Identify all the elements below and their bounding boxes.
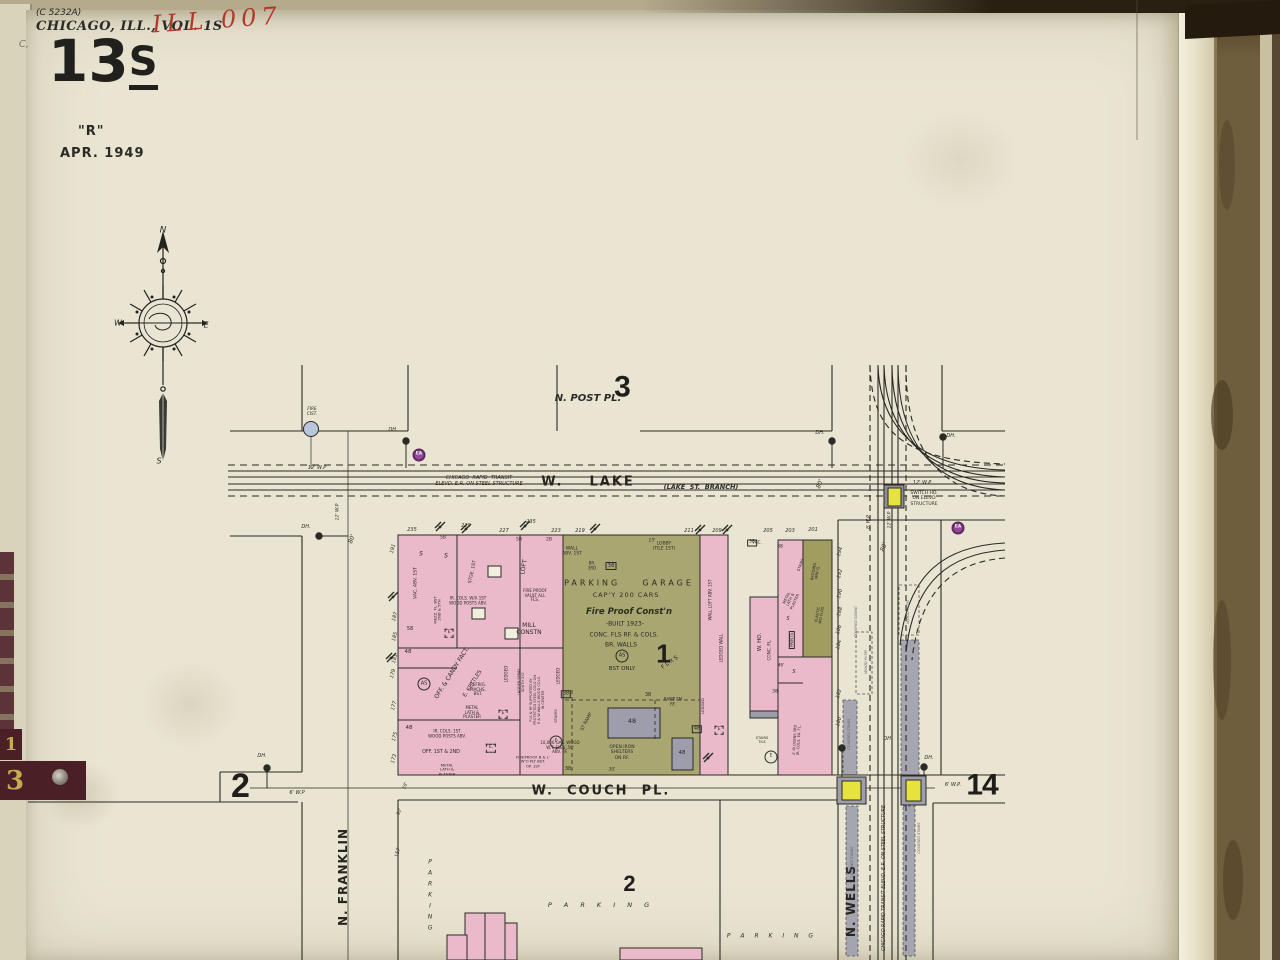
map-annotation: OFF. 1ST & 2ND [422,750,460,756]
map-annotation: RAMP FM RF. [664,697,682,706]
compass-letter-s: S [156,456,161,465]
map-annotation: 2B [546,537,552,542]
map-annotation: OPEN IRON SHELTERS ON RF. [609,745,634,761]
map-annotation: PLASTIC WD FLRS [814,606,826,625]
map-annotation: FLS & RF SUPPORTED BY PROTECTED STEEL CO… [529,675,546,725]
compass-letter-n: N [160,226,167,237]
page-ref-west: 2 [231,766,249,806]
map-annotation: IR. COLS. W/A 1ST WOOD POSTS ABV. [449,596,487,605]
map-annotation: 229 [461,524,471,530]
map-annotation: MEZZ. FL. BST 2ND & 5TH [434,596,443,623]
garage-built: -BUILT 1923- [606,620,644,627]
map-annotation: S [444,552,448,559]
map-annotation: 38 [606,562,617,570]
under-page-letter: C, [19,39,29,51]
map-annotation: VAC. ABV. 1ST [413,567,418,599]
map-annotation: COVERED STAIRS [847,718,851,749]
map-annotation: CONC. FLS RF. & COLS. [590,631,659,638]
map-annotation: 177 [391,701,399,712]
map-annotation: E [715,726,724,735]
map-annotation: 80' [396,808,403,816]
map-annotation: 209 [712,529,722,535]
street-label-franklin: N. FRANKLIN [336,828,350,926]
map-annotation: 194 [837,547,845,558]
map-annotation: 205 [763,529,773,535]
map-annotation: BST ONLY [609,666,635,672]
map-annotation: 184 [836,640,844,651]
map-annotation: 38 [561,690,571,698]
switch-house-label: SWITCH HO. ON ELEVD STRUCTURE [910,491,937,507]
map-annotation: LEDGED [557,668,562,685]
transit-label-wells: CHICAGO RAPID TRANSIT ELEVD. E.R. ON STE… [882,805,888,951]
garage-title: PARKING GARAGE [564,578,694,587]
map-annotation: BR. WALLS [605,641,637,648]
map-annotation: PAINTS [789,631,795,649]
map-annotation: 38 [565,767,571,773]
map-annotation: STAIRS TILE [756,736,769,744]
map-annotation: AS [418,678,431,691]
map-annotation: 203 [785,529,795,535]
map-annotation: FIRE PROOF VAULT ALL FLS. [523,589,547,603]
map-annotation: 211 [684,529,694,535]
map-annotation: BEDDING MNF'G. [810,562,822,581]
map-annotation: 179 [390,669,398,680]
ea-badge-west: EA [413,449,426,462]
map-annotation: S [419,550,423,557]
map-annotations-layer: 321412N. POST PL.W. LAKE(LAKE ST. BRANCH… [0,0,1280,960]
map-annotation: 48 [406,725,413,731]
map-annotation: 48 [405,649,412,655]
map-annotation: LEDGED [505,666,510,683]
map-annotation: 185 [392,632,400,643]
map-annotation: 175 [392,732,400,743]
map-annotation: IR. COLS. 1ST WOOD POSTS ABV. [428,729,466,738]
map-annotation: 6' W.P [289,791,304,797]
map-annotation: E [445,629,454,638]
garage-capacity: CAP'Y 200 CARS [593,592,660,600]
garage-construction: Fire Proof Const'n [586,607,672,617]
map-annotation: E [765,751,778,764]
map-annotation: E [499,710,508,719]
map-annotation: WALL LOFT ABV. 1ST [709,579,714,620]
map-annotation: LOBBY (TILE 1ST) [653,542,676,553]
map-annotation: MILL CONSTN [516,622,541,636]
map-annotation: 12' W.P [913,481,931,487]
map-annotation: ST RAMP [580,712,594,732]
parking-label-center: P A R K I N G [548,902,654,910]
map-annotation: STAIRS [554,709,558,722]
map-annotation: CONC. FL. [768,639,773,660]
map-annotation: 12' W.P [887,512,892,529]
map-annotation: 38 [772,689,778,694]
map-annotation: 182 [836,689,844,700]
map-annotation: 8' W.P [866,515,871,529]
map-annotation: STAIRS [797,558,806,572]
map-annotation: 30' [609,767,616,772]
map-annotation: COVERED STAIRS [917,822,921,853]
block-number-2: 2 [623,871,634,897]
compass-letter-e: E [203,320,208,329]
transit-label-lake: CHICAGO RAPID TRANSIT ELEVD. E.R. ON STE… [435,476,522,488]
map-annotation: METAL LATH & PLASTER [463,706,481,720]
map-annotation: DH. [924,756,933,762]
map-annotation: 80' [879,541,889,552]
map-annotation: METAL LATH & PLASTER [781,590,800,611]
street-label-couch: W. COUCH PL. [532,783,671,798]
map-annotation: 12' W.P [335,504,340,521]
map-annotation: FIREPROOF B & L' W'O PLT BST. OP. 1ST [516,755,550,768]
map-annotation: METAL LATH & PLASTER [439,763,456,776]
map-annotation: 5B [516,537,522,542]
page-ref-east: 14 [966,767,997,802]
map-annotation: 235 [407,528,417,534]
map-annotation: 5B [440,535,446,540]
map-annotation: 190 [837,589,845,600]
map-annotation: S [792,670,795,676]
street-label-post: N. POST PL. [555,393,621,405]
map-annotation: 48 [692,725,702,733]
map-annotation: E [550,736,563,749]
map-annotation: LEDGED WALL [720,634,725,663]
map-annotation: DH. [946,434,955,440]
ea-badge-east: EA [952,522,965,535]
map-annotation: 12' W.P [308,466,326,472]
map-annotation: DH. [257,754,266,760]
map-annotation: 187 [392,612,400,623]
map-annotation: 186 [836,625,844,636]
map-annotation: 38 [747,540,757,547]
map-annotation: WOOD PLTM [906,600,910,624]
map-annotation: 192 [837,569,845,580]
sanborn-map-page: 1 3 (C 5232A) CHICAGO, ILL., VOL. 1S ILL… [0,0,1280,960]
map-annotation: STGE. 1ST [468,560,478,584]
map-annotation: LOFT [519,559,529,575]
map-annotation: 80' [347,533,357,544]
map-annotation: LADDER SPRAY SOUTH S'O' [517,669,525,695]
parking-label-west: PARKING [426,859,433,936]
compass-letter-w: W [114,318,122,327]
parking-label-east: P A R K I N G [727,932,817,939]
map-annotation: AS [616,650,629,663]
map-annotation: DH. [883,737,892,743]
map-annotation: DH. [815,431,824,437]
map-annotation: 157 [395,848,403,859]
map-annotation: 188 [837,607,845,618]
map-annotation: E. [486,744,496,753]
map-annotation: 201 [808,528,818,534]
map-annotation: LEDGED [701,698,705,714]
map-annotation: 18' [402,782,409,790]
street-label-lake-branch: (LAKE ST. BRANCH) [664,484,739,492]
map-annotation: 2' IR OVENS 3RD IR. COLS. EA. FL. [792,725,802,756]
map-annotation: DH. [301,525,310,531]
map-annotation: 46' [778,664,784,669]
map-annotation: WOOD PLTM [864,650,868,674]
map-annotation: 38 [645,693,651,699]
map-annotation: 15' [649,538,656,543]
map-annotation: 235 [526,520,536,526]
map-annotation: COVERED SIDING [854,606,858,637]
map-annotation: 173 [391,754,399,765]
map-annotation: W. HO. [757,633,763,651]
map-annotation: 6' W.P. [945,783,961,789]
map-annotation: 48 [628,718,636,726]
map-annotation: 38 [777,544,783,549]
map-annotation: 48 [679,750,686,756]
map-annotation: 80' [815,478,825,489]
map-annotation: 223 [551,529,561,535]
street-label-lake: W. LAKE [541,474,635,489]
map-annotation: 219 [575,529,585,535]
map-annotation: S [786,617,789,623]
map-annotation: 58 [407,627,413,633]
map-annotation: REFRIG. MACHS. BST. [470,683,486,697]
map-annotation: DH. [388,428,397,434]
map-annotation: 180 [836,717,844,728]
map-annotation: 181 [392,654,400,665]
map-annotation: 227 [499,529,509,535]
map-annotation: COVERED STAIRS [850,846,854,877]
map-annotation: WALL ABV. 1ST [562,547,582,558]
map-annotation: BR. 3RD [588,561,596,570]
map-annotation: 191 [390,544,398,555]
fire-cistern-label: FIRE CIST. [307,407,317,417]
